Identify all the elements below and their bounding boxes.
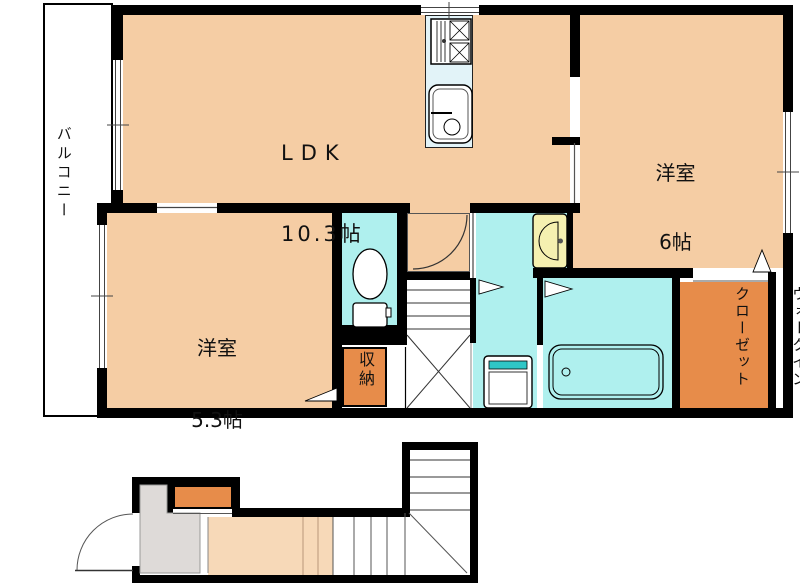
sliding-door [157, 203, 217, 213]
ldk-label: LDK 10.3帖 [281, 86, 364, 302]
room-size: 5.3帖 [152, 408, 282, 432]
washbasin-icon [533, 214, 567, 268]
stairs-lower [303, 460, 470, 575]
washing-machine-icon [484, 356, 532, 408]
walk-in-closet-label: ウォークイン クローゼット [694, 286, 800, 406]
kitchen-window [421, 2, 479, 18]
room-size: 6帖 [618, 231, 733, 254]
window [777, 112, 799, 233]
storage-label: 収納 [355, 351, 375, 389]
balcony-label: バルコニー [54, 126, 73, 221]
room-name: 洋室 [152, 336, 282, 360]
ldk-name: LDK [281, 140, 364, 167]
wic-line1: ウォークイン [789, 286, 800, 406]
entrance-genkan [140, 485, 232, 573]
kitchen-sink-icon [429, 85, 472, 143]
bedroom-6-label: 洋室 6帖 [618, 116, 733, 300]
window [107, 60, 129, 190]
room-name: 洋室 [618, 162, 733, 185]
window [91, 225, 113, 368]
stairs-upper [407, 290, 471, 408]
gas-stove-icon [431, 19, 471, 64]
entrance-door-arc [75, 514, 133, 571]
bathtub-icon [549, 345, 663, 399]
bedroom-53-label: 洋室 5.3帖 [152, 288, 282, 480]
interior-door-arc [408, 214, 470, 272]
wic-line2: クローゼット [732, 286, 751, 406]
floor-plan: バルコニー LDK 10.3帖 洋室 6帖 洋室 5.3帖 収納 ウォークイン … [0, 0, 800, 588]
ldk-size: 10.3帖 [281, 221, 364, 248]
door-line [470, 213, 476, 278]
